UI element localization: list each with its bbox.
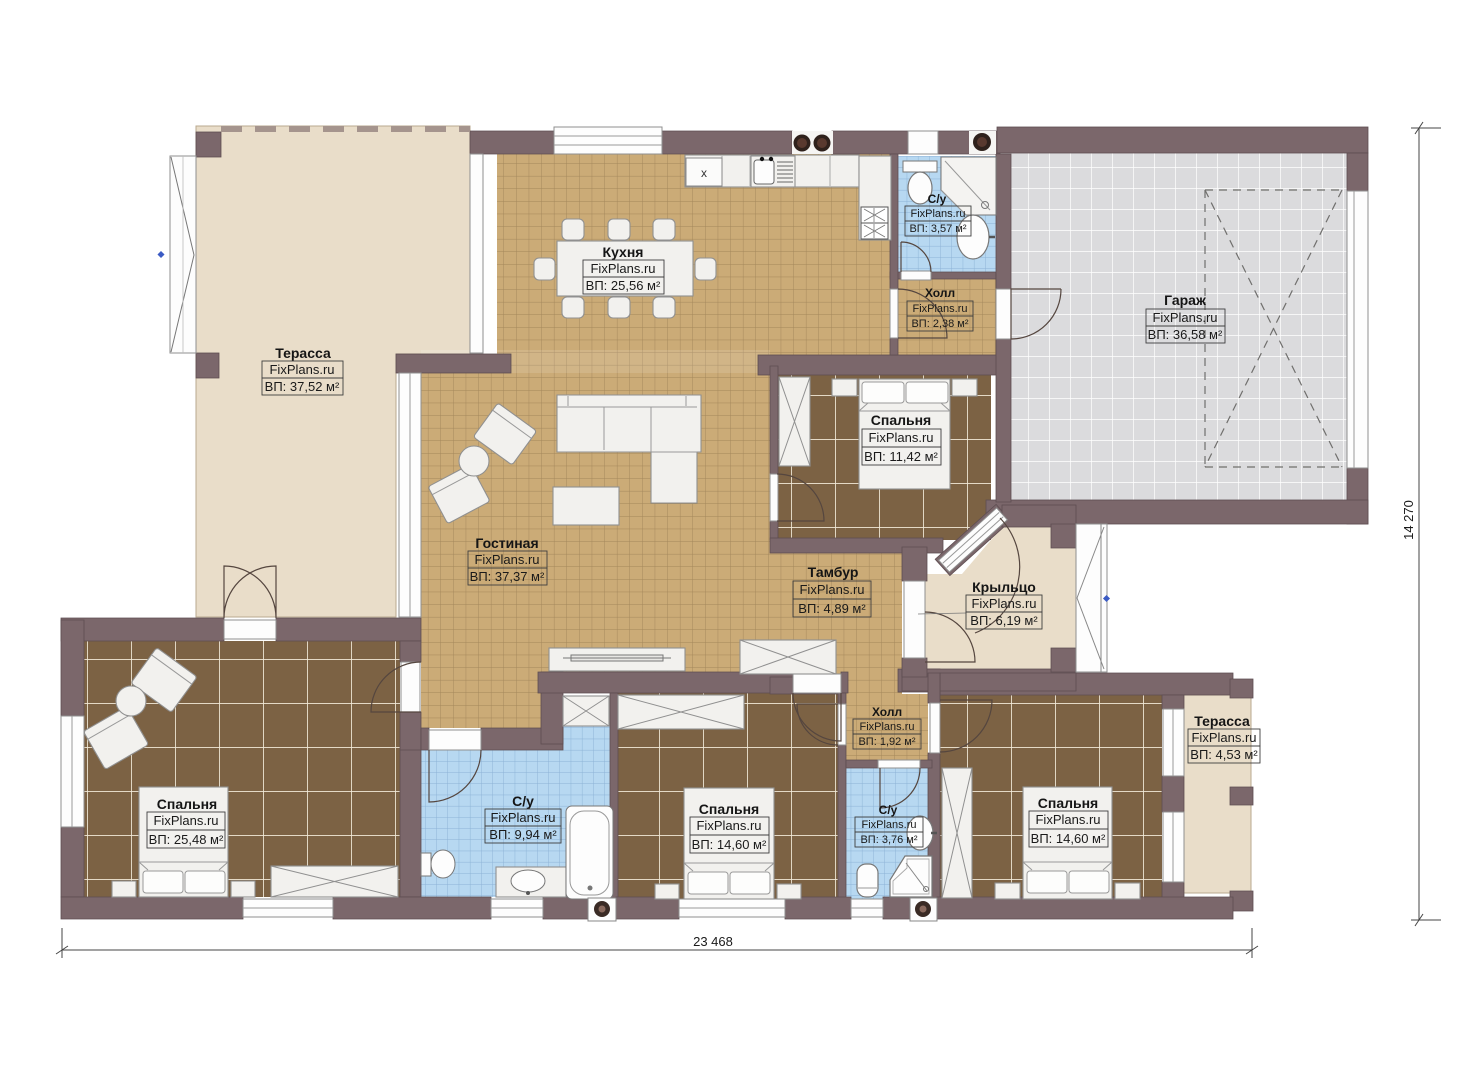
svg-text:Холл: Холл [872, 705, 902, 719]
svg-text:FixPlans.ru: FixPlans.ru [474, 552, 539, 567]
svg-text:ВП: 4,53 м²: ВП: 4,53 м² [1190, 747, 1258, 762]
svg-text:С/у: С/у [928, 192, 947, 206]
svg-text:ВП: 37,37 м²: ВП: 37,37 м² [470, 569, 545, 584]
svg-text:ВП: 36,58 м²: ВП: 36,58 м² [1148, 327, 1223, 342]
svg-text:FixPlans.ru: FixPlans.ru [859, 721, 914, 733]
svg-text:FixPlans.ru: FixPlans.ru [1035, 812, 1100, 827]
svg-text:FixPlans.ru: FixPlans.ru [861, 819, 916, 831]
svg-text:FixPlans.ru: FixPlans.ru [912, 303, 967, 315]
svg-text:ВП: 11,42 м²: ВП: 11,42 м² [864, 449, 938, 464]
svg-text:23 468: 23 468 [693, 934, 733, 949]
svg-text:Гараж: Гараж [1164, 292, 1207, 308]
svg-text:ВП: 3,76 м²: ВП: 3,76 м² [860, 834, 917, 846]
svg-text:Спальня: Спальня [1038, 795, 1098, 811]
svg-text:FixPlans.ru: FixPlans.ru [490, 810, 555, 825]
svg-text:FixPlans.ru: FixPlans.ru [269, 362, 334, 377]
svg-text:ВП: 37,52 м²: ВП: 37,52 м² [265, 379, 340, 394]
svg-text:ВП: 9,94 м²: ВП: 9,94 м² [489, 827, 557, 842]
svg-text:x: x [701, 166, 707, 180]
svg-text:Спальня: Спальня [871, 412, 931, 428]
svg-text:ВП: 2,38 м²: ВП: 2,38 м² [911, 318, 968, 330]
svg-text:FixPlans.ru: FixPlans.ru [590, 261, 655, 276]
svg-text:ВП: 14,60 м²: ВП: 14,60 м² [692, 837, 767, 852]
svg-text:FixPlans.ru: FixPlans.ru [696, 818, 761, 833]
svg-text:Спальня: Спальня [699, 801, 759, 817]
svg-text:FixPlans.ru: FixPlans.ru [1152, 310, 1217, 325]
svg-text:Гостиная: Гостиная [475, 535, 538, 551]
svg-text:ВП: 25,48 м²: ВП: 25,48 м² [149, 832, 224, 847]
svg-text:Терасса: Терасса [1194, 713, 1250, 729]
svg-text:ВП: 25,56 м²: ВП: 25,56 м² [586, 278, 661, 293]
svg-text:Холл: Холл [925, 286, 955, 300]
svg-text:FixPlans.ru: FixPlans.ru [910, 208, 965, 220]
svg-text:FixPlans.ru: FixPlans.ru [868, 430, 933, 445]
svg-text:Спальня: Спальня [157, 796, 217, 812]
svg-text:14 270: 14 270 [1401, 500, 1416, 540]
svg-text:Терасса: Терасса [275, 345, 331, 361]
svg-text:FixPlans.ru: FixPlans.ru [971, 596, 1036, 611]
svg-text:ВП: 3,57 м²: ВП: 3,57 м² [909, 223, 966, 235]
svg-text:С/у: С/у [512, 793, 534, 809]
svg-text:FixPlans.ru: FixPlans.ru [799, 582, 864, 597]
svg-text:FixPlans.ru: FixPlans.ru [1191, 730, 1256, 745]
svg-text:С/у: С/у [879, 803, 898, 817]
svg-text:Крыльцо: Крыльцо [972, 579, 1036, 595]
svg-text:Кухня: Кухня [603, 244, 644, 260]
svg-text:FixPlans.ru: FixPlans.ru [153, 813, 218, 828]
svg-text:ВП: 4,89 м²: ВП: 4,89 м² [798, 601, 866, 616]
svg-text:Тамбур: Тамбур [808, 564, 859, 580]
svg-text:ВП: 14,60 м²: ВП: 14,60 м² [1031, 831, 1106, 846]
svg-text:ВП: 6,19 м²: ВП: 6,19 м² [970, 613, 1038, 628]
svg-text:ВП: 1,92 м²: ВП: 1,92 м² [858, 736, 915, 748]
